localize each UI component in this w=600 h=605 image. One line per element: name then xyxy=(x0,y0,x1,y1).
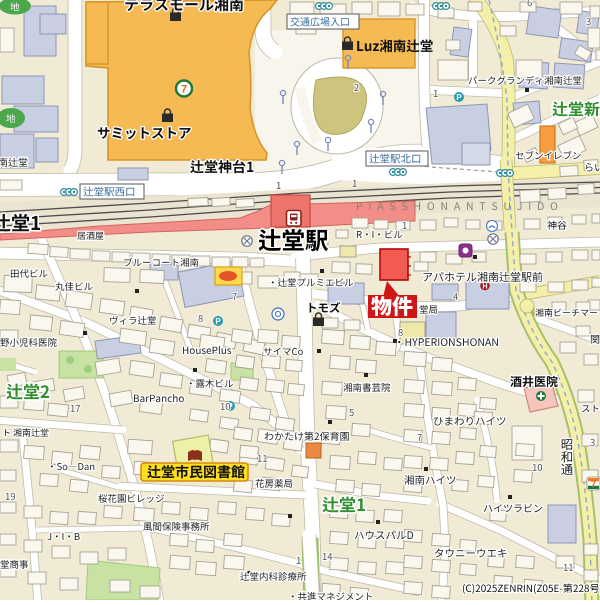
svg-text:7: 7 xyxy=(181,84,187,96)
svg-text:P: P xyxy=(215,317,221,326)
svg-text:P: P xyxy=(456,93,462,102)
svg-text:H: H xyxy=(482,284,487,291)
svg-text:7: 7 xyxy=(591,479,597,490)
